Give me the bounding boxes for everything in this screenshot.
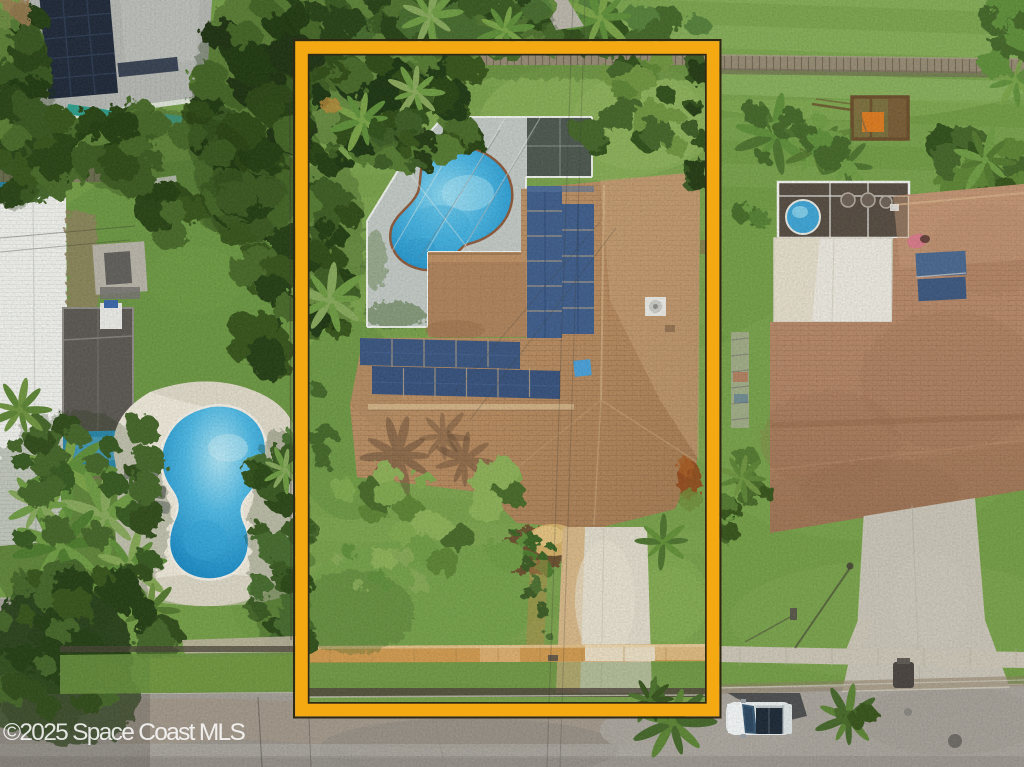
svg-text:©2025 Space Coast MLS: ©2025 Space Coast MLS <box>3 719 245 746</box>
